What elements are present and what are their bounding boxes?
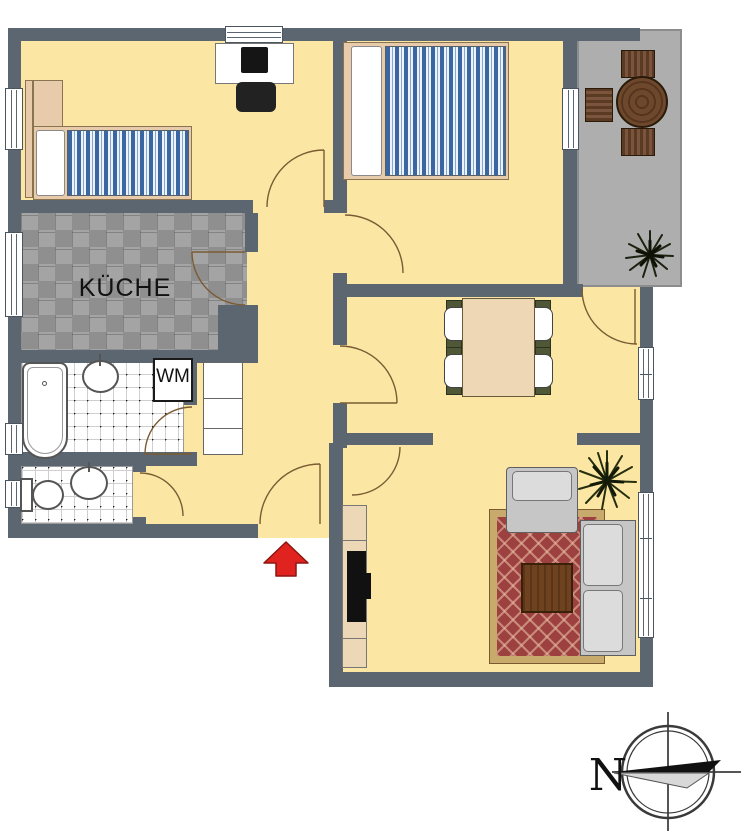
wc-sink-tap bbox=[88, 462, 90, 472]
compass-north-label: N bbox=[589, 750, 628, 801]
wall-bedroom1-bottom-stub bbox=[324, 200, 347, 213]
wall-living-left bbox=[329, 443, 343, 687]
sofa-cushion bbox=[583, 524, 623, 586]
wall-room-divider-right bbox=[577, 433, 652, 445]
bed2-pillow bbox=[351, 46, 382, 176]
wall-kitchen-corner bbox=[218, 305, 258, 352]
floor-plan: WM KÜCHE bbox=[0, 0, 750, 833]
sofa-cushion bbox=[583, 590, 623, 652]
sideboard-shelf-line bbox=[342, 540, 367, 541]
armchair-cushion bbox=[512, 471, 572, 501]
bathroom-sink-tap bbox=[99, 354, 101, 366]
wall-kitchen-right bbox=[245, 213, 258, 252]
wall-bedroom2-right bbox=[563, 28, 577, 287]
desk-monitor-icon bbox=[241, 47, 268, 73]
washing-machine-label: WM bbox=[156, 366, 190, 388]
window-kitchen-left bbox=[5, 232, 23, 317]
window-bedroom1-top bbox=[225, 26, 283, 43]
wall-living-bottom bbox=[329, 672, 653, 687]
wall-wc-right-stub2 bbox=[133, 517, 146, 526]
wall-room-divider-left bbox=[333, 433, 433, 445]
bed1-pillow bbox=[36, 130, 65, 196]
wall-bedroom1-bottom bbox=[8, 200, 253, 213]
dining-table bbox=[462, 298, 535, 397]
bed1-mattress bbox=[67, 130, 189, 196]
washing-machine: WM bbox=[153, 358, 193, 402]
window-living-right bbox=[638, 492, 654, 638]
toilet-bowl bbox=[32, 480, 64, 510]
tv-stand bbox=[364, 573, 371, 599]
balcony-chair-left bbox=[585, 88, 613, 122]
compass-needle-south bbox=[614, 773, 709, 788]
balcony-chair-top bbox=[621, 50, 655, 78]
wall-top bbox=[8, 28, 640, 41]
sideboard-shelf-line bbox=[342, 638, 367, 639]
bed1-headboard bbox=[25, 80, 33, 198]
window-bathroom-left bbox=[5, 423, 23, 455]
coffee-table bbox=[521, 563, 573, 613]
entrance-arrow-icon bbox=[264, 542, 308, 576]
wall-bottom-left bbox=[8, 524, 258, 538]
balcony-table bbox=[616, 76, 668, 128]
window-dining-right bbox=[638, 347, 654, 400]
bed2-mattress bbox=[385, 46, 506, 176]
bed1-cabinet bbox=[33, 80, 63, 128]
compass-needle-north bbox=[614, 760, 721, 772]
desk-chair bbox=[236, 82, 276, 112]
window-bedroom2-balcony bbox=[562, 88, 579, 150]
hall-wardrobe bbox=[203, 362, 243, 455]
compass-icon: N bbox=[589, 712, 741, 831]
window-bedroom1-left bbox=[5, 88, 23, 150]
balcony-chair-bottom bbox=[621, 128, 655, 156]
bathtub bbox=[22, 362, 68, 459]
wall-wc-right-stub bbox=[133, 466, 146, 472]
wall-dining-top bbox=[333, 284, 583, 297]
kitchen-label: KÜCHE bbox=[60, 274, 190, 303]
